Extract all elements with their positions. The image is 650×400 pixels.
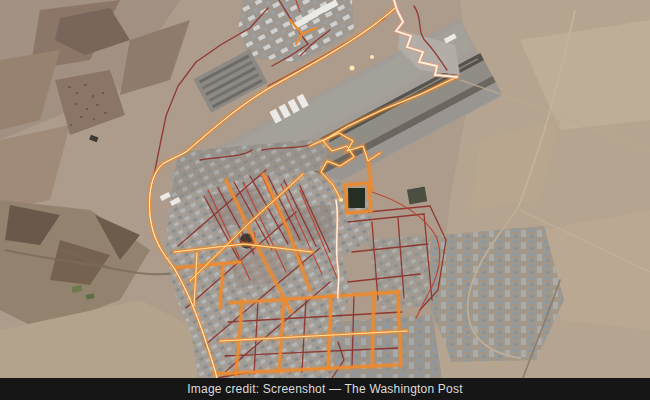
screenshot-frame: Image credit: Screenshot — The Washingto…: [0, 0, 650, 400]
satellite-map: [0, 0, 650, 378]
caption-text: Image credit: Screenshot — The Washingto…: [187, 382, 462, 396]
caption-bar: Image credit: Screenshot — The Washingto…: [0, 378, 650, 400]
